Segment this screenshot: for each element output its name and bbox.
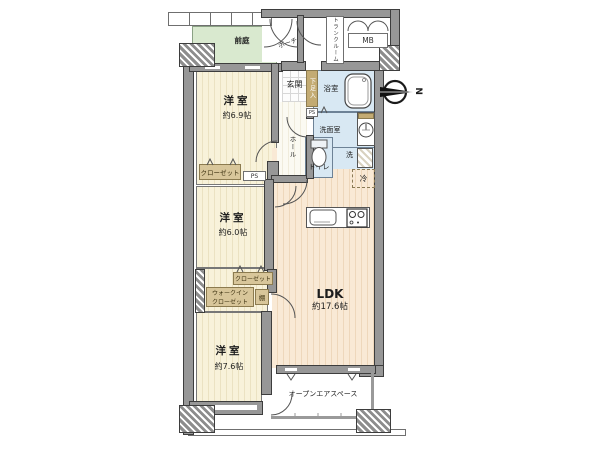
compass-label: N	[413, 84, 423, 98]
kitchen-counter	[306, 207, 370, 228]
window-bedroom1-a	[205, 66, 220, 69]
hall-label: ホール	[283, 130, 295, 164]
bedroom2-label: 洋室	[207, 212, 259, 224]
pipe-space-upper: PS	[306, 108, 318, 117]
bedroom3-label: 洋室	[203, 345, 255, 357]
floor-plan: トランクルーム MB 下足入 PS 冷 クローゼット PS ウォークイン クロー…	[0, 0, 600, 450]
fence-segment	[168, 12, 190, 26]
bedroom-2	[196, 186, 265, 268]
wall-hall-left	[272, 64, 278, 142]
window-ldk-2	[348, 368, 360, 371]
pipe-space-lower: PS	[243, 171, 266, 181]
shelf-box: 棚	[255, 289, 269, 305]
wic-wall-hatch	[196, 270, 204, 312]
wall-right	[375, 62, 383, 372]
wall-bedroom3-right	[262, 312, 271, 394]
walk-in-closet: ウォークイン クローゼット	[206, 287, 254, 307]
ldk-label: LDK	[300, 288, 360, 302]
front-garden-label: 前庭	[222, 37, 262, 46]
washing-machine-icon	[357, 148, 373, 168]
toilet-label: トイレ	[306, 163, 332, 171]
shoe-cabinet: 下足入	[306, 70, 318, 107]
fence-segment	[210, 12, 232, 26]
wall-hatch-top-right	[380, 46, 399, 70]
closet-1: クローゼット	[199, 164, 241, 180]
bedroom2-size: 約6.0帖	[207, 228, 259, 237]
closet-2: クローゼット	[233, 272, 273, 285]
wall-hatch-bottom-right	[357, 410, 390, 432]
wall-left	[184, 44, 193, 434]
open-air-rail-bottom	[271, 416, 361, 419]
wall-mid-b	[307, 136, 313, 178]
washer-label: 洗	[343, 151, 356, 159]
bedroom3-size: 約7.6帖	[203, 362, 255, 371]
refrigerator-space: 冷	[352, 169, 375, 188]
compass-icon	[380, 81, 413, 103]
open-air-rail-right	[371, 372, 374, 412]
wall-hatch-top-left	[180, 44, 214, 66]
entrance-label: 玄関	[282, 80, 307, 89]
wall-hall-bottom	[272, 176, 307, 182]
wash-counter-tag	[358, 113, 374, 119]
bath-label: 浴室	[318, 85, 344, 94]
mb-box: MB	[348, 33, 388, 48]
window-bedroom1-b	[245, 66, 260, 69]
wall-entrance-top-a	[282, 62, 305, 70]
wall-bedroom2-right	[265, 180, 273, 270]
fence-segment	[231, 12, 253, 26]
window-bedroom3	[215, 405, 257, 410]
bedroom1-label: 洋室	[211, 95, 263, 107]
bedroom1-size: 約6.9帖	[211, 111, 263, 120]
fence-segment	[189, 12, 211, 26]
window-ldk-1	[285, 368, 297, 371]
washroom-label: 洗面室	[315, 126, 345, 134]
open-air-label: オープンエアスペース	[282, 390, 364, 398]
wall-hatch-bottom-left	[180, 406, 214, 432]
ldk-size: 約17.6帖	[300, 303, 360, 313]
trunk-room: トランクルーム	[326, 16, 344, 64]
